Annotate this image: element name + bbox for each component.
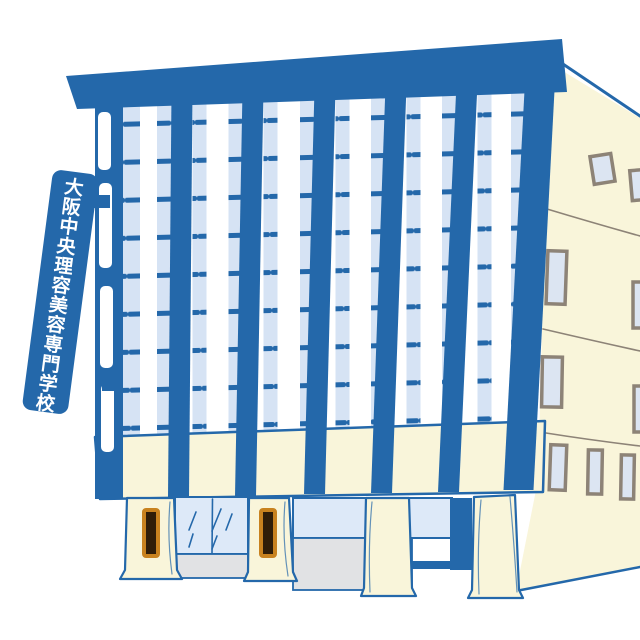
window-column — [193, 98, 207, 438]
roof-parapet — [66, 39, 567, 109]
storefront-blue-ledge — [412, 561, 452, 569]
side-window — [549, 445, 567, 491]
slat — [100, 286, 113, 368]
window-column — [264, 96, 278, 435]
pillar — [168, 92, 193, 497]
door-sign-left — [144, 510, 158, 556]
sign-mount — [94, 195, 110, 208]
illustration-canvas: 大 阪 中 央 理 容 美 容 専 門 学 校 — [0, 0, 640, 640]
side-window — [588, 450, 603, 494]
window-column — [336, 94, 350, 433]
side-window — [546, 251, 567, 305]
door-sign-right — [261, 510, 275, 556]
side-window — [630, 169, 640, 200]
storefront — [120, 495, 523, 598]
window-column — [478, 89, 492, 428]
entrance-step — [175, 554, 248, 578]
column — [468, 495, 523, 598]
side-window — [634, 386, 640, 432]
side-window — [590, 153, 615, 184]
sign-mount — [102, 378, 118, 391]
window-column — [123, 100, 140, 440]
slat — [101, 384, 114, 452]
side-window — [542, 357, 563, 407]
signboard: 大 阪 中 央 理 容 美 容 専 門 学 校 — [21, 169, 99, 418]
window-column — [407, 91, 421, 430]
side-window — [621, 455, 635, 499]
storefront-blue-pillar — [450, 498, 472, 570]
side-window — [633, 282, 640, 328]
building-illustration: 大 阪 中 央 理 容 美 容 専 門 学 校 — [0, 0, 640, 640]
slat — [98, 112, 111, 170]
